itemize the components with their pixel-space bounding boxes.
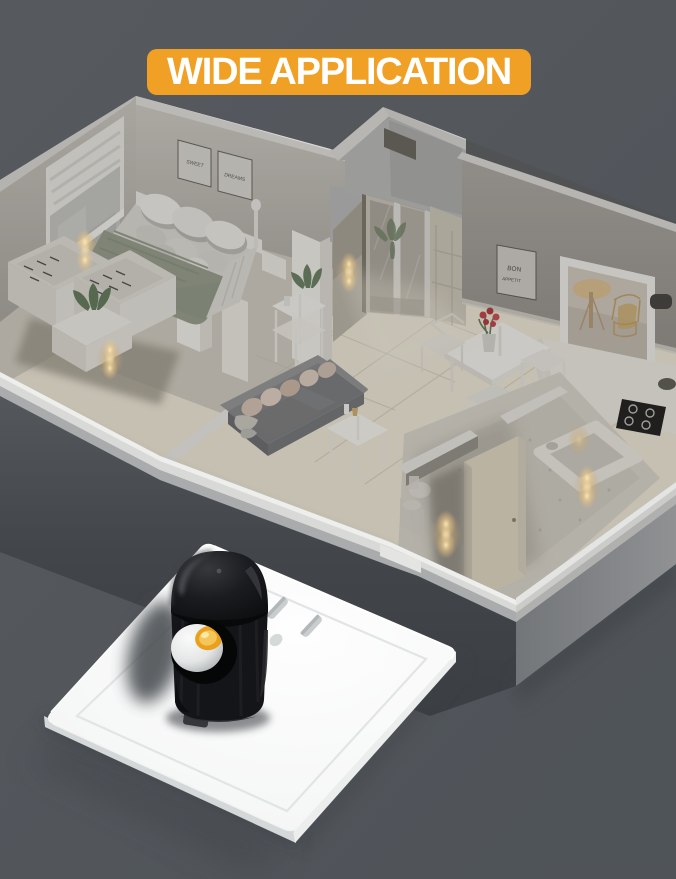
svg-text:WIDE APPLICATION: WIDE APPLICATION [167,51,511,93]
